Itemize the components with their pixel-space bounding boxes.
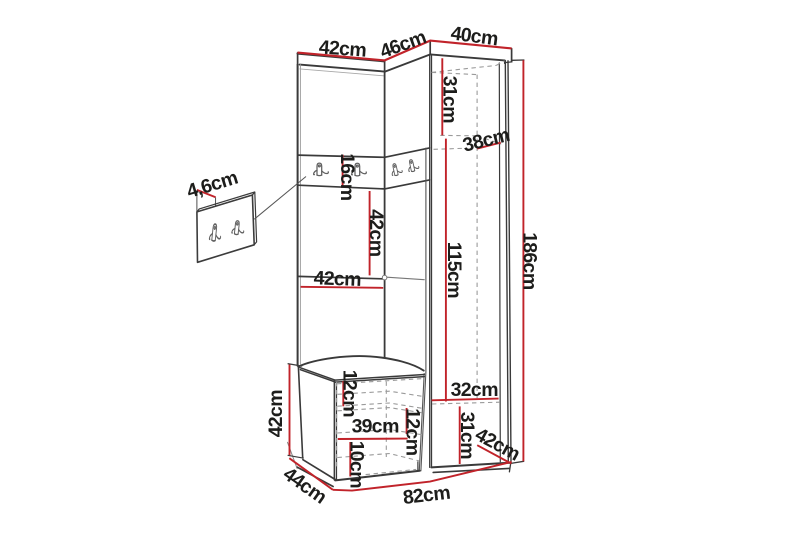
svg-text:42cm: 42cm xyxy=(318,36,367,61)
svg-text:32cm: 32cm xyxy=(451,379,499,401)
svg-text:115cm: 115cm xyxy=(443,242,465,299)
svg-text:39cm: 39cm xyxy=(352,416,400,438)
svg-text:12cm: 12cm xyxy=(339,370,361,418)
svg-text:42cm: 42cm xyxy=(265,390,287,438)
svg-text:186cm: 186cm xyxy=(518,232,540,290)
svg-text:42cm: 42cm xyxy=(365,209,387,257)
svg-text:12cm: 12cm xyxy=(402,408,424,456)
svg-text:16cm: 16cm xyxy=(336,153,358,201)
svg-text:10cm: 10cm xyxy=(346,441,368,489)
svg-text:42cm: 42cm xyxy=(313,267,361,291)
svg-text:31cm: 31cm xyxy=(439,76,461,124)
